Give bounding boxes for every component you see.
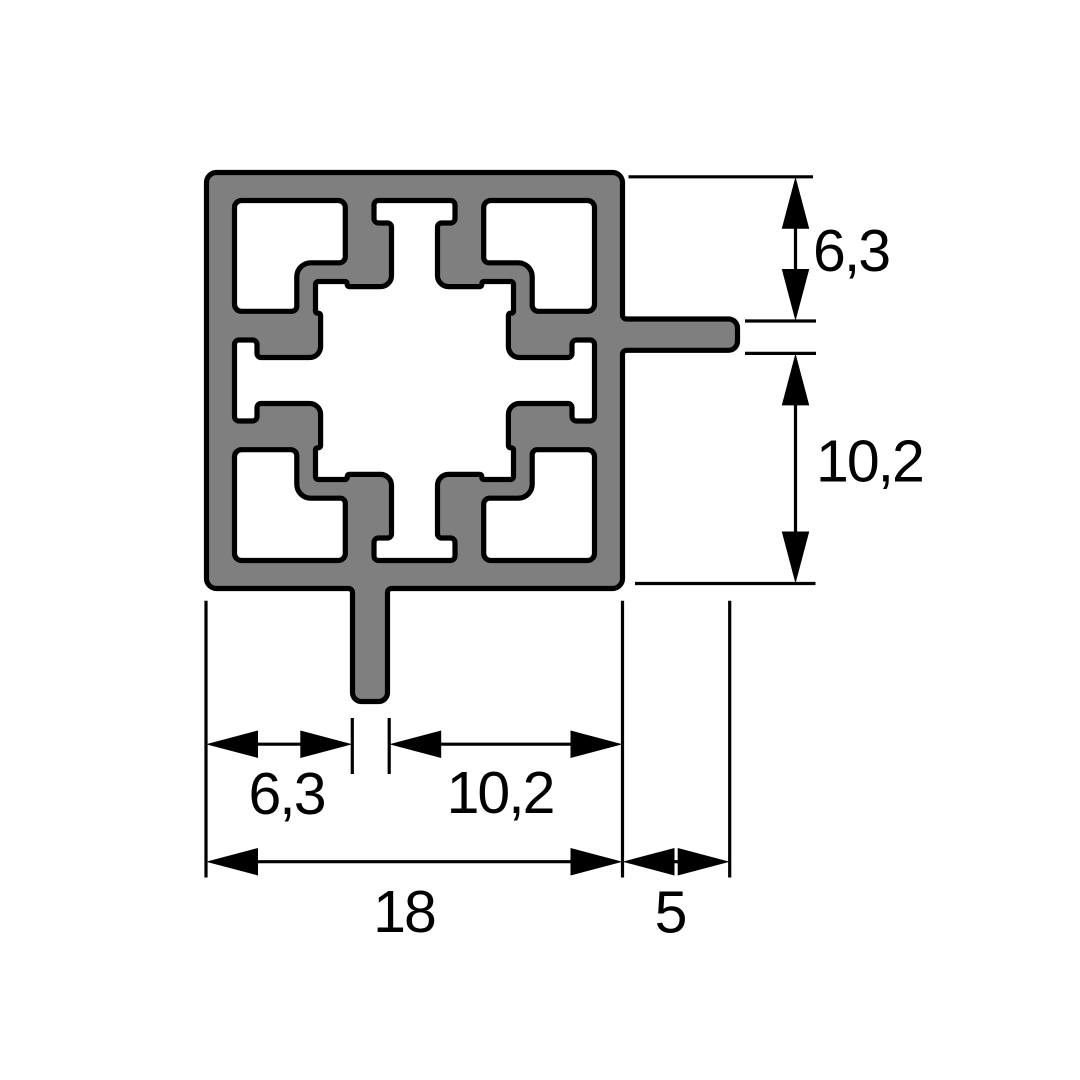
svg-text:6,3: 6,3 <box>248 761 324 827</box>
svg-text:10,2: 10,2 <box>816 429 923 495</box>
svg-text:5: 5 <box>655 880 688 946</box>
svg-text:18: 18 <box>373 879 435 945</box>
svg-text:6,3: 6,3 <box>813 218 889 284</box>
svg-text:10,2: 10,2 <box>447 760 554 826</box>
